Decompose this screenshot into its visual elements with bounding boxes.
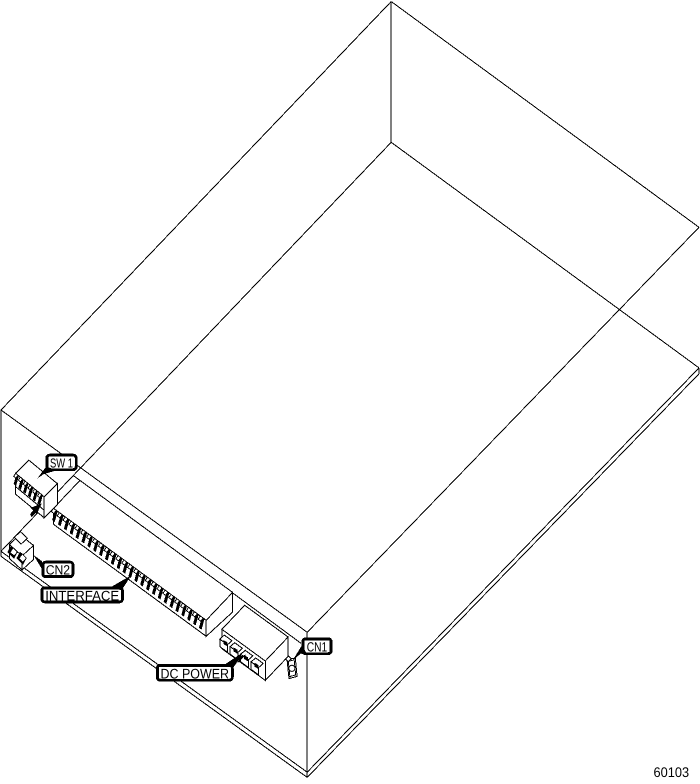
svg-text:DC POWER: DC POWER xyxy=(161,666,230,682)
svg-text:SW 1: SW 1 xyxy=(50,456,73,471)
svg-text:CN1: CN1 xyxy=(307,640,328,655)
svg-text:60103: 60103 xyxy=(654,764,690,780)
svg-text:CN2: CN2 xyxy=(46,563,70,578)
svg-text:INTERFACE: INTERFACE xyxy=(45,588,119,604)
